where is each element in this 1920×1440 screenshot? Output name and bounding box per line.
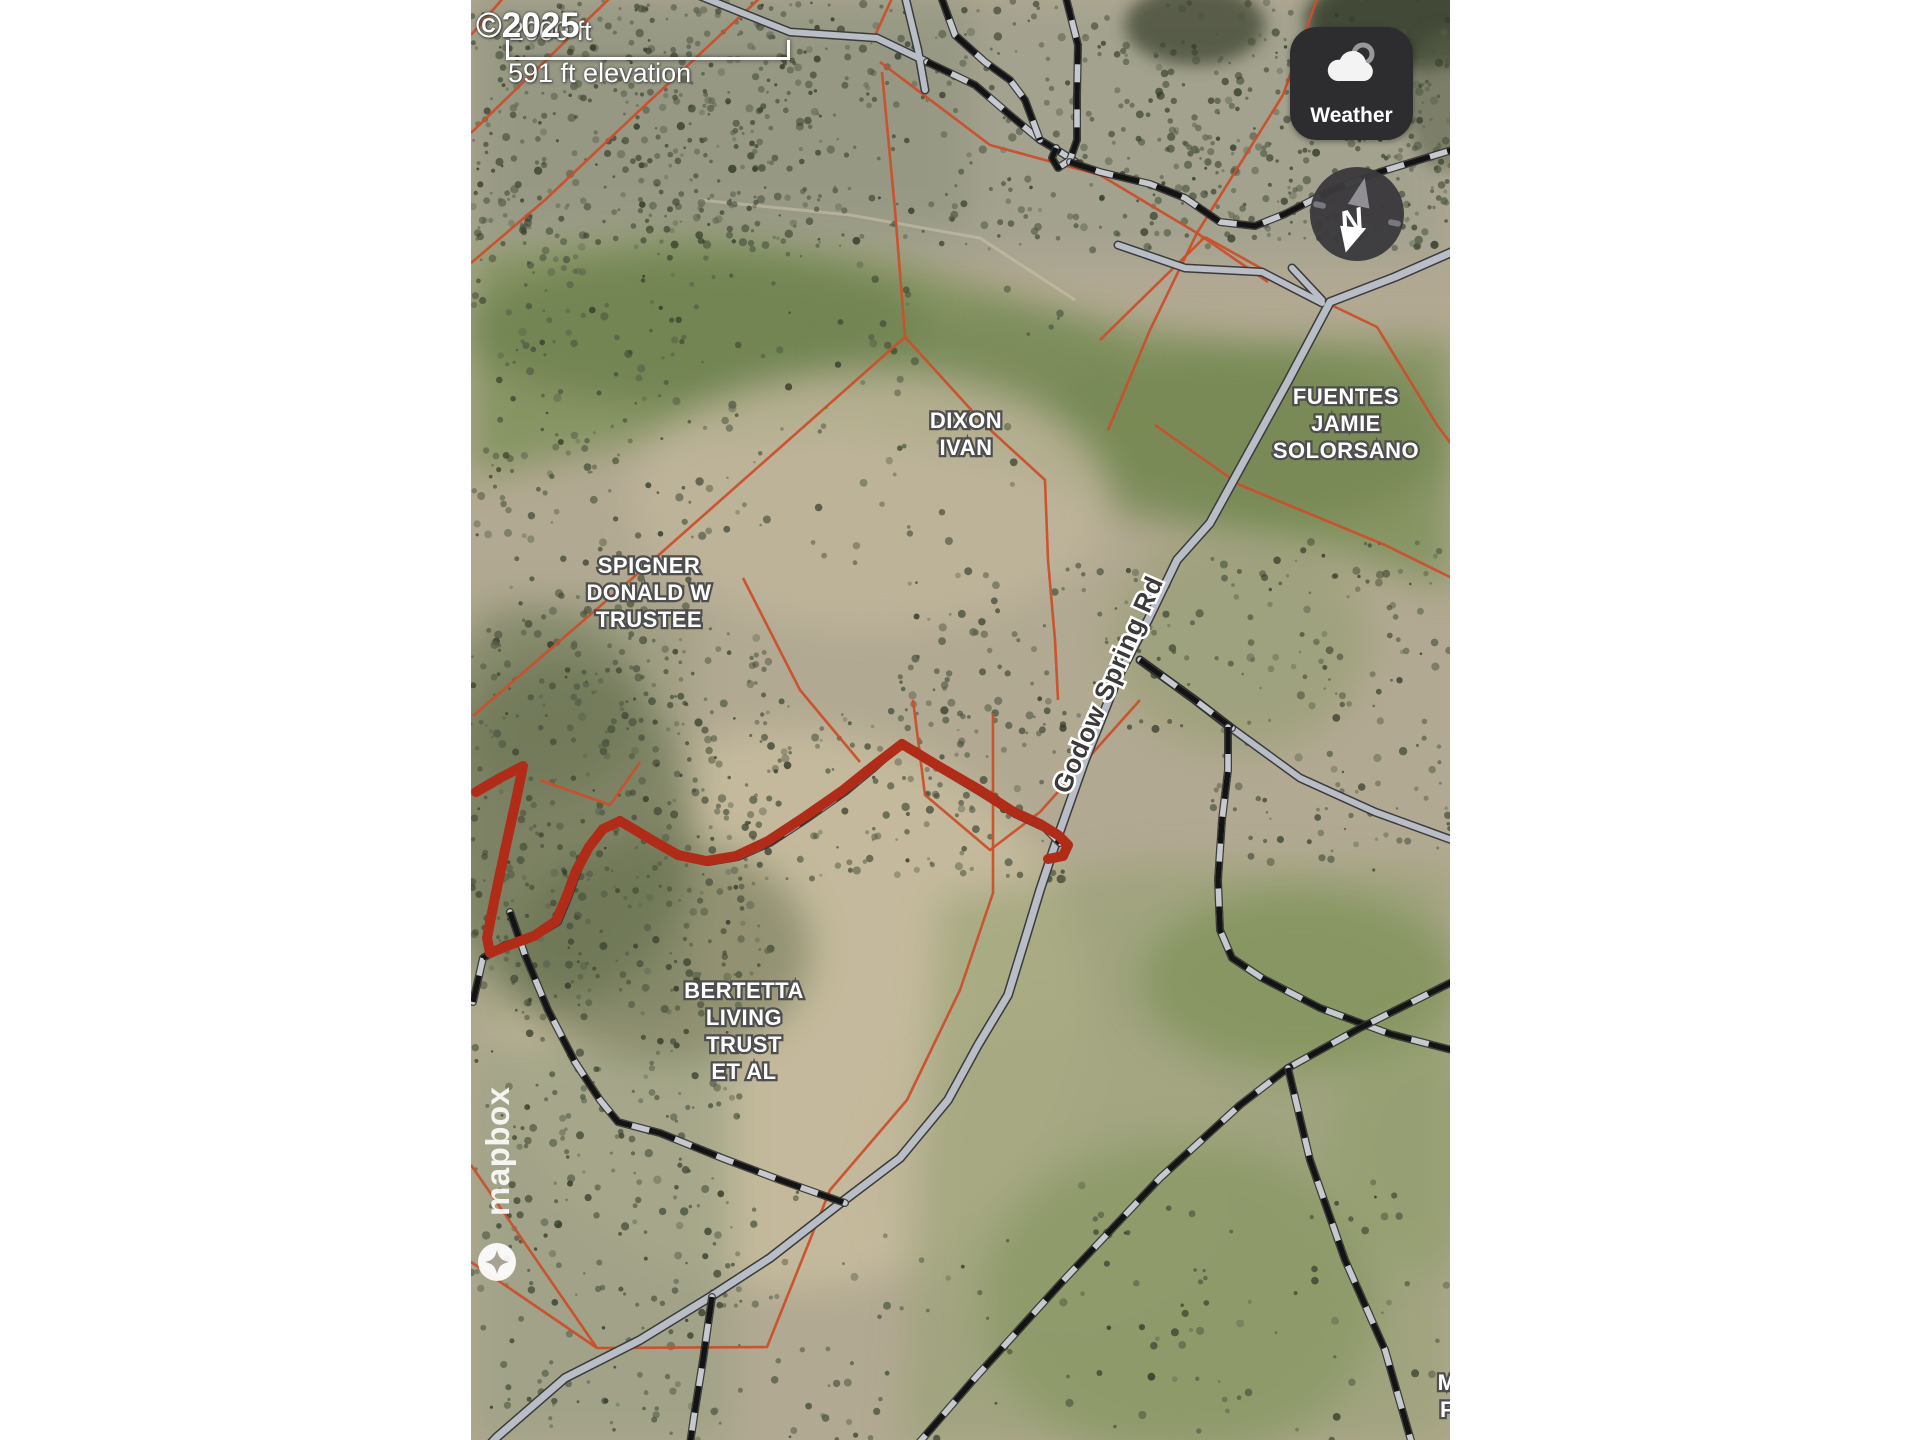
weather-button[interactable]: Weather bbox=[1290, 27, 1413, 140]
terrain-imagery bbox=[471, 0, 1450, 1440]
mapbox-logo[interactable]: mapbox bbox=[478, 1086, 516, 1281]
scale-bar bbox=[506, 40, 790, 60]
compass-control[interactable]: N bbox=[1309, 166, 1405, 262]
mapbox-wordmark: mapbox bbox=[479, 1086, 516, 1216]
elevation-label: 591 ft elevation bbox=[508, 58, 691, 89]
cloud-sun-icon bbox=[1321, 41, 1383, 89]
satellite-basemap: DIXONIVANFUENTESJAMIESOLORSANOSPIGNERDON… bbox=[471, 0, 1450, 1440]
parcel-label-spigner-donald-w-trustee: SPIGNERDONALD WTRUSTEE bbox=[587, 553, 712, 632]
mapbox-pin-icon bbox=[478, 1243, 516, 1281]
weather-button-label: Weather bbox=[1310, 104, 1392, 128]
map-canvas[interactable]: DIXONIVANFUENTESJAMIESOLORSANOSPIGNERDON… bbox=[471, 0, 1450, 1440]
